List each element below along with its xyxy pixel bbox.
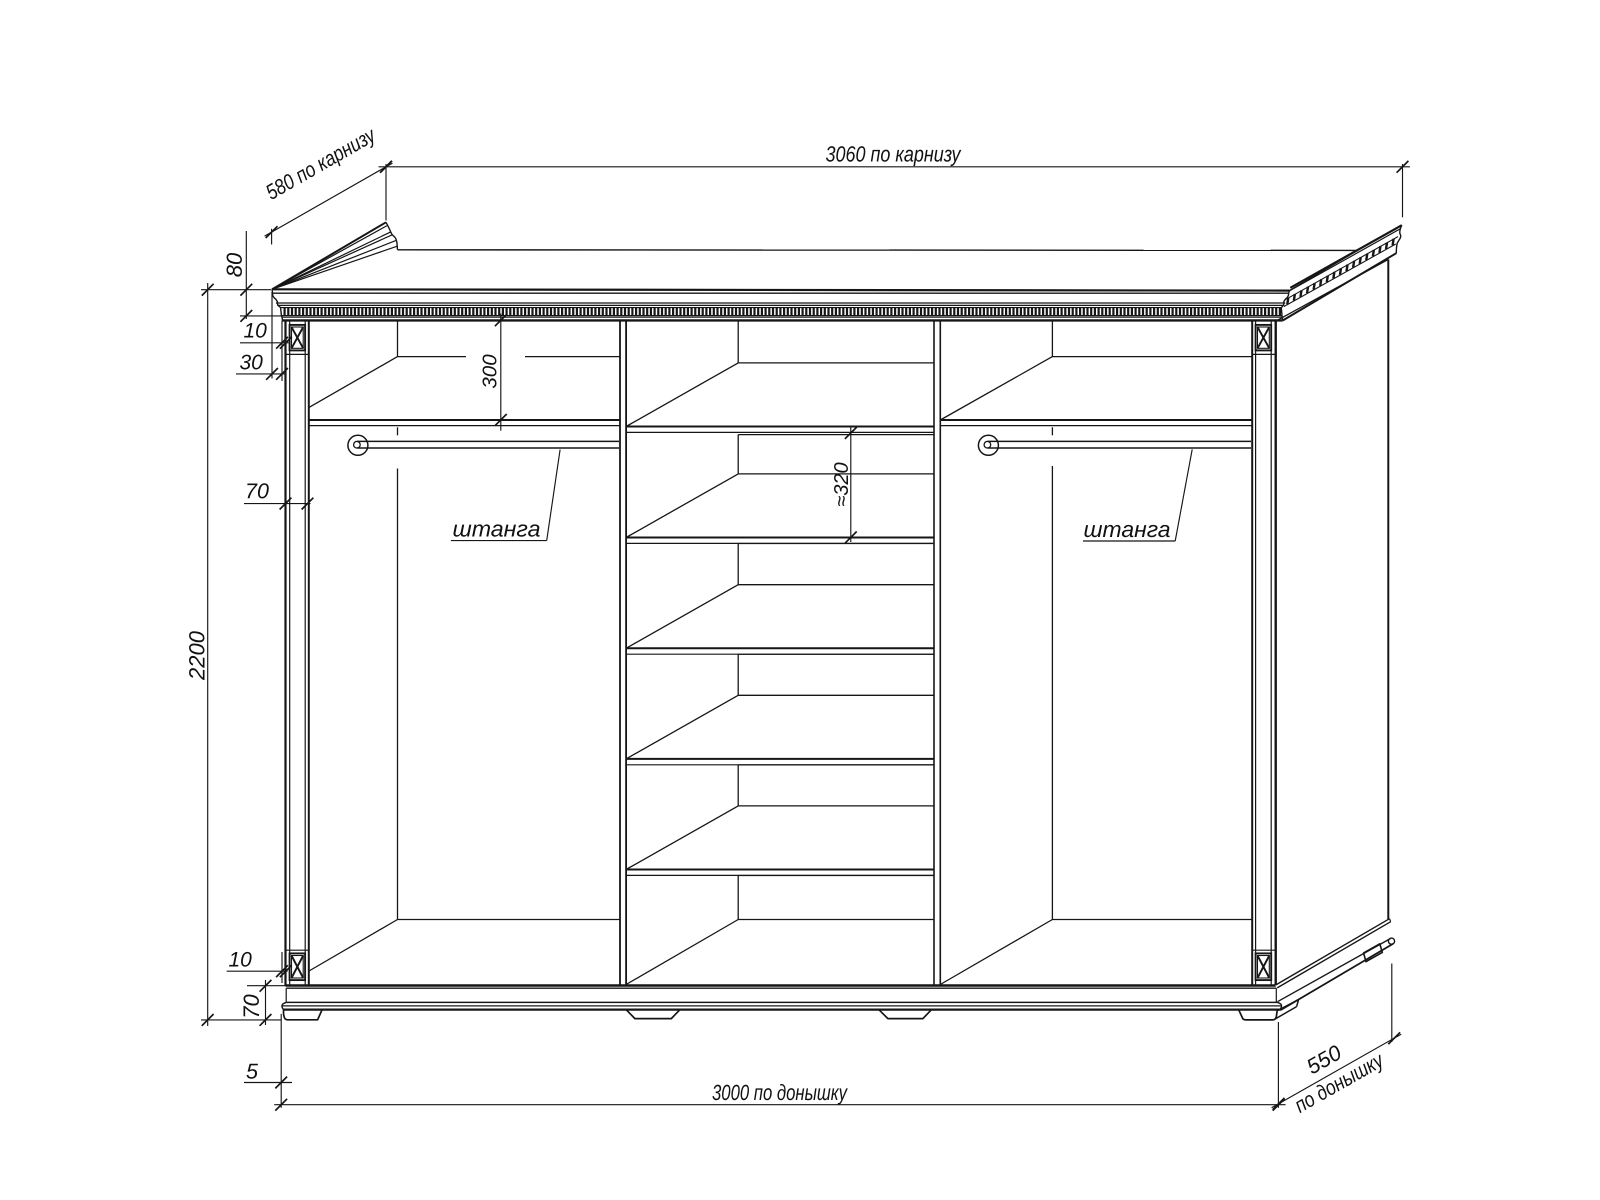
svg-text:80: 80 bbox=[222, 252, 247, 277]
svg-text:70: 70 bbox=[239, 994, 264, 1019]
svg-text:3000 по донышку: 3000 по донышку bbox=[712, 1080, 849, 1105]
svg-text:5: 5 bbox=[246, 1060, 259, 1084]
svg-text:2200: 2200 bbox=[185, 630, 210, 681]
svg-text:штанга: штанга bbox=[452, 516, 540, 541]
svg-text:≈320: ≈320 bbox=[831, 462, 853, 506]
svg-text:300: 300 bbox=[479, 354, 502, 389]
svg-text:10: 10 bbox=[243, 320, 267, 343]
svg-text:70: 70 bbox=[245, 479, 269, 503]
svg-text:10: 10 bbox=[228, 949, 252, 972]
svg-text:3060 по карнизу: 3060 по карнизу bbox=[825, 141, 962, 166]
svg-text:30: 30 bbox=[239, 351, 263, 374]
svg-text:штанга: штанга bbox=[1083, 517, 1170, 542]
